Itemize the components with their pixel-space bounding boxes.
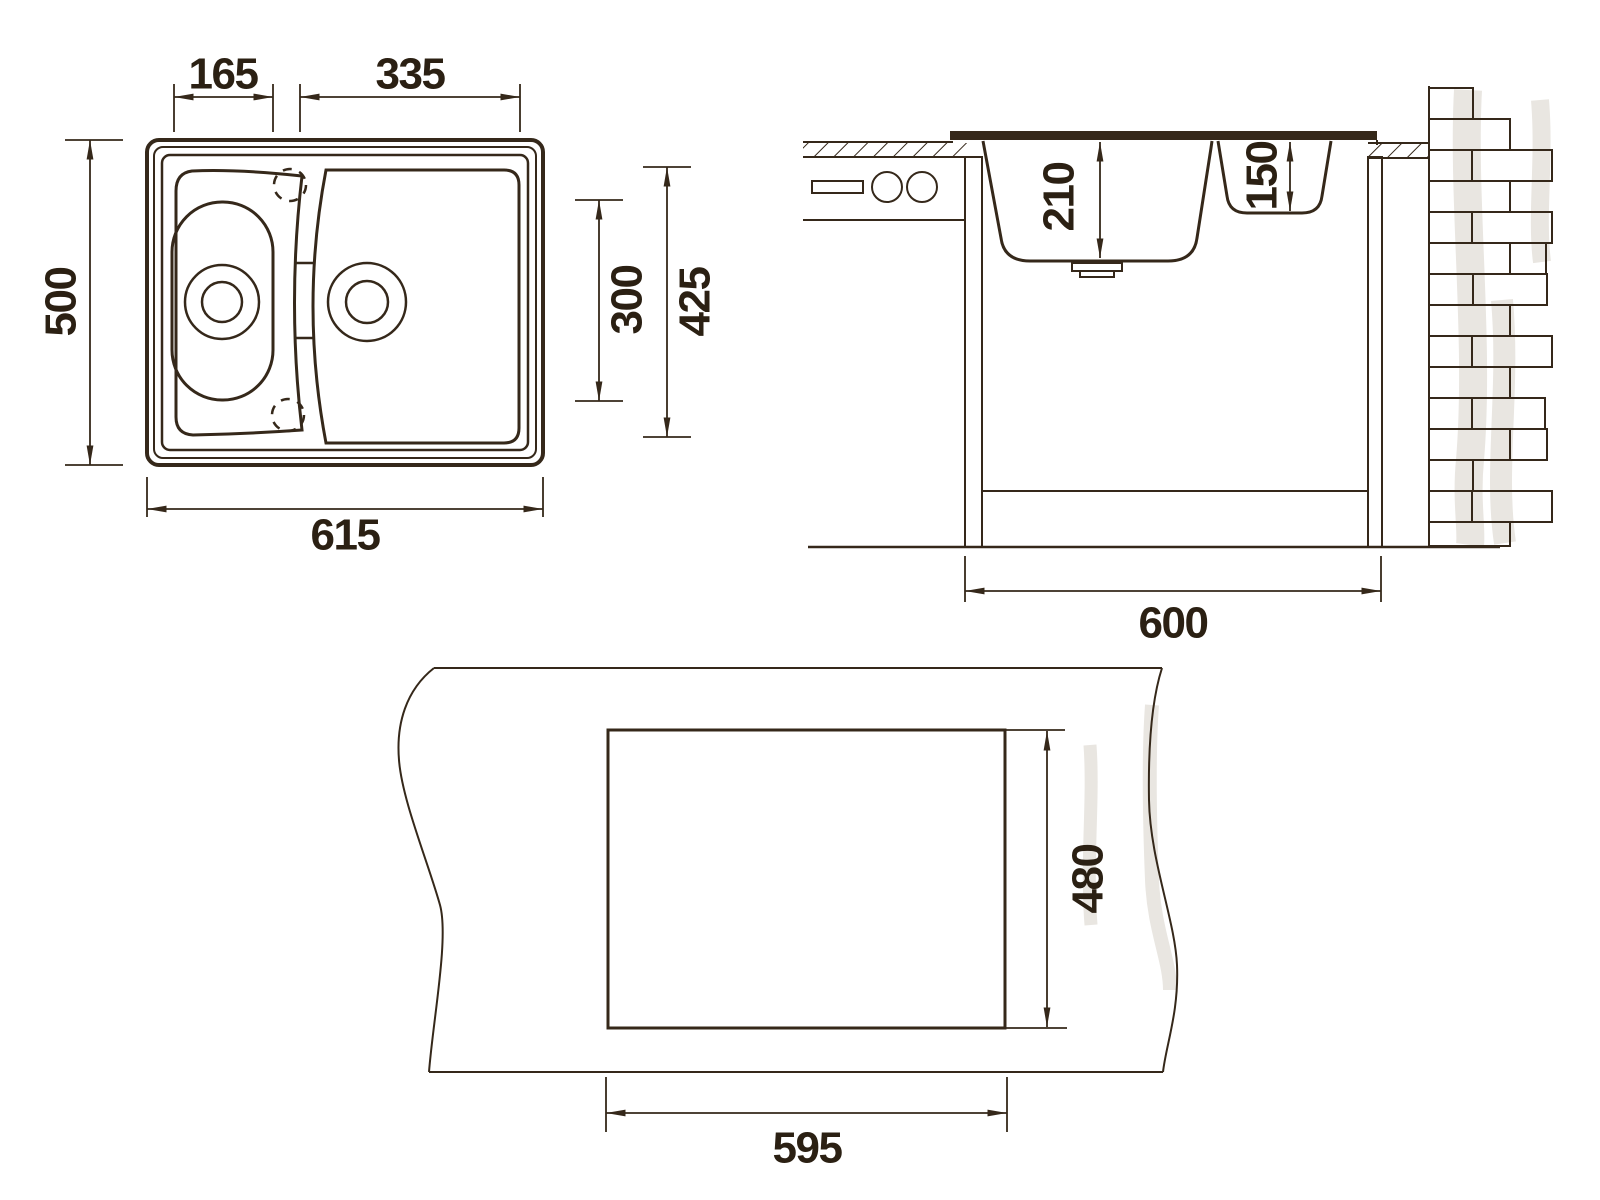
dim-overall-depth: 500 <box>36 140 123 465</box>
dim-label-bowls-inner-length: 300 <box>602 266 651 335</box>
section-view: 210 150 600 <box>803 86 1552 647</box>
dim-cabinet-width: 600 <box>965 556 1381 647</box>
cutout-rectangle <box>608 730 1005 1028</box>
dim-label-main-bowl-depth: 210 <box>1034 163 1083 232</box>
dim-small-bowl-depth: 150 <box>1237 142 1290 211</box>
dim-bowls-area-length: 425 <box>643 167 719 437</box>
cabinet-front-panel <box>803 172 965 220</box>
main-bowl-section <box>983 141 1212 261</box>
dim-label-overall-depth: 500 <box>36 268 85 337</box>
dim-main-bowl-depth: 210 <box>1034 142 1100 258</box>
dim-label-main-bowl-width: 335 <box>376 49 446 98</box>
dim-label-cutout-width: 595 <box>773 1123 843 1172</box>
slab-left-break-edge <box>398 668 442 1072</box>
drawing-canvas: 165 335 500 615 300 <box>0 0 1600 1200</box>
brick-wall <box>1429 86 1552 546</box>
cabinet-right-wall <box>1368 157 1382 547</box>
drain-outlet <box>1072 263 1122 277</box>
dim-label-bowls-area-length: 425 <box>670 267 719 337</box>
dim-label-cabinet-width: 600 <box>1139 598 1208 647</box>
plan-view: 165 335 500 615 300 <box>36 49 719 559</box>
worktop-right <box>1368 143 1428 158</box>
sink-technical-drawing: 165 335 500 615 300 <box>0 0 1600 1200</box>
dim-bowls-inner-length: 300 <box>575 200 651 401</box>
dim-label-small-bowl-depth: 150 <box>1237 142 1286 211</box>
sink-rim-section <box>950 131 1377 145</box>
dim-label-cutout-depth: 480 <box>1063 845 1112 914</box>
dim-label-overall-width: 615 <box>311 510 381 559</box>
drawer-handle-slot <box>812 181 863 193</box>
dim-small-bowl-width: 165 <box>174 49 273 132</box>
dim-overall-width: 615 <box>147 477 543 559</box>
cutout-view: 480 595 <box>398 668 1177 1172</box>
dim-main-bowl-width: 335 <box>300 49 520 132</box>
dim-cutout-width: 595 <box>606 1077 1007 1172</box>
knob-right <box>907 172 937 202</box>
small-bowl-drain <box>185 265 259 339</box>
cabinet-left-wall <box>965 157 982 547</box>
knob-left <box>872 172 902 202</box>
main-bowl-drain <box>328 263 406 341</box>
main-bowl <box>313 170 519 443</box>
dim-label-small-bowl-width: 165 <box>189 49 259 98</box>
worktop-left <box>803 142 967 157</box>
